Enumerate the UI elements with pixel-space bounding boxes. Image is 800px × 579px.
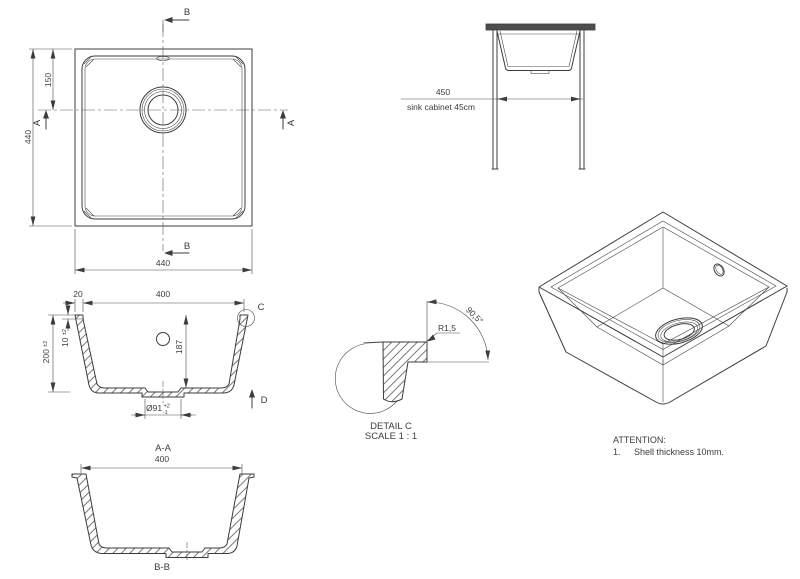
attention-note: ATTENTION: 1. Shell thickness 10mm. — [613, 435, 724, 457]
svg-text:B: B — [184, 7, 190, 18]
section-bb-profile — [72, 474, 254, 558]
dim-200-height: 200 ±2 — [41, 315, 75, 392]
sink-rim-inner-edge — [82, 56, 245, 219]
cabinet-frame — [492, 30, 585, 169]
iso-overflow-hole — [712, 262, 727, 278]
view-marker-d: D — [249, 389, 268, 408]
svg-text:D: D — [261, 395, 268, 406]
dim-400-opening-aa: 400 — [83, 289, 244, 303]
svg-text:450: 450 — [436, 87, 450, 97]
section-aa-profile — [75, 315, 248, 397]
svg-text:Ø91+2-1: Ø91+2-1 — [146, 403, 170, 416]
sink-in-cabinet — [497, 31, 580, 74]
sink-outer-edge — [75, 49, 252, 226]
iso-drain — [653, 313, 706, 349]
svg-text:187: 187 — [174, 340, 184, 354]
svg-text:A: A — [286, 119, 297, 126]
sink-bowl-edge — [85, 59, 242, 216]
iso-bowl-opening — [558, 227, 769, 344]
angle-value: 90,5° — [464, 305, 485, 326]
overflow-hole-section — [157, 333, 170, 346]
radius-callout: R1,5 — [427, 323, 460, 342]
svg-text:440: 440 — [23, 130, 33, 144]
cabinet-view: 450 sink cabinet 45cm — [401, 24, 595, 169]
section-marker-b-bottom: B — [164, 241, 190, 256]
section-aa-label: A-A — [155, 443, 172, 454]
section-bb-label: B-B — [154, 562, 170, 573]
drawing-canvas: 440 150 440 A A B — [0, 0, 800, 579]
detail-c: 90,5° R1,5 DETAIL C SCALE 1 : 1 — [335, 301, 489, 442]
dim-440-bottom: 440 — [75, 229, 252, 274]
iso-bowl-corner-edges — [558, 228, 769, 365]
detail-c-scale: SCALE 1 : 1 — [365, 431, 417, 442]
svg-text:10 ±2: 10 ±2 — [60, 329, 70, 347]
angle-arc — [427, 302, 488, 360]
svg-text:400: 400 — [155, 454, 169, 464]
svg-text:200 ±2: 200 ±2 — [41, 341, 51, 364]
svg-text:400: 400 — [156, 289, 170, 299]
svg-text:20: 20 — [73, 289, 83, 299]
svg-text:150: 150 — [43, 73, 53, 87]
attention-title: ATTENTION: — [613, 435, 666, 445]
technical-drawing-page: 440 150 440 A A B — [0, 0, 800, 579]
corner-chamfer-marks — [84, 56, 243, 219]
section-bb: 400 B-B — [72, 454, 254, 573]
top-view: 440 150 440 A A B — [23, 7, 297, 274]
isometric-view — [539, 212, 787, 404]
countertop — [486, 24, 595, 30]
svg-text:B: B — [184, 241, 190, 252]
dim-drain-diameter: Ø91+2-1 — [131, 399, 196, 419]
dim-400-opening-bb: 400 — [81, 454, 242, 473]
dim-20-rim: 20 — [63, 289, 244, 312]
section-aa: 20 400 200 ±2 10 ±2 187 — [41, 289, 268, 454]
svg-text:C: C — [258, 302, 265, 313]
section-marker-a-left: A — [32, 110, 49, 129]
attention-item-text: Shell thickness 10mm. — [634, 447, 724, 457]
detail-c-rim-section — [383, 342, 427, 402]
svg-text:R1,5: R1,5 — [438, 323, 456, 333]
svg-text:440: 440 — [156, 258, 170, 268]
attention-item-number: 1. — [613, 447, 621, 457]
dim-150-offset: 150 — [43, 49, 53, 110]
dim-187-depth: 187 — [174, 315, 186, 388]
section-marker-b-top: B — [163, 7, 190, 32]
svg-text:sink cabinet 45cm: sink cabinet 45cm — [407, 102, 475, 112]
section-marker-a-right: A — [280, 110, 297, 129]
dim-450-cabinet: 450 sink cabinet 45cm — [401, 87, 583, 112]
svg-text:A: A — [32, 119, 43, 126]
